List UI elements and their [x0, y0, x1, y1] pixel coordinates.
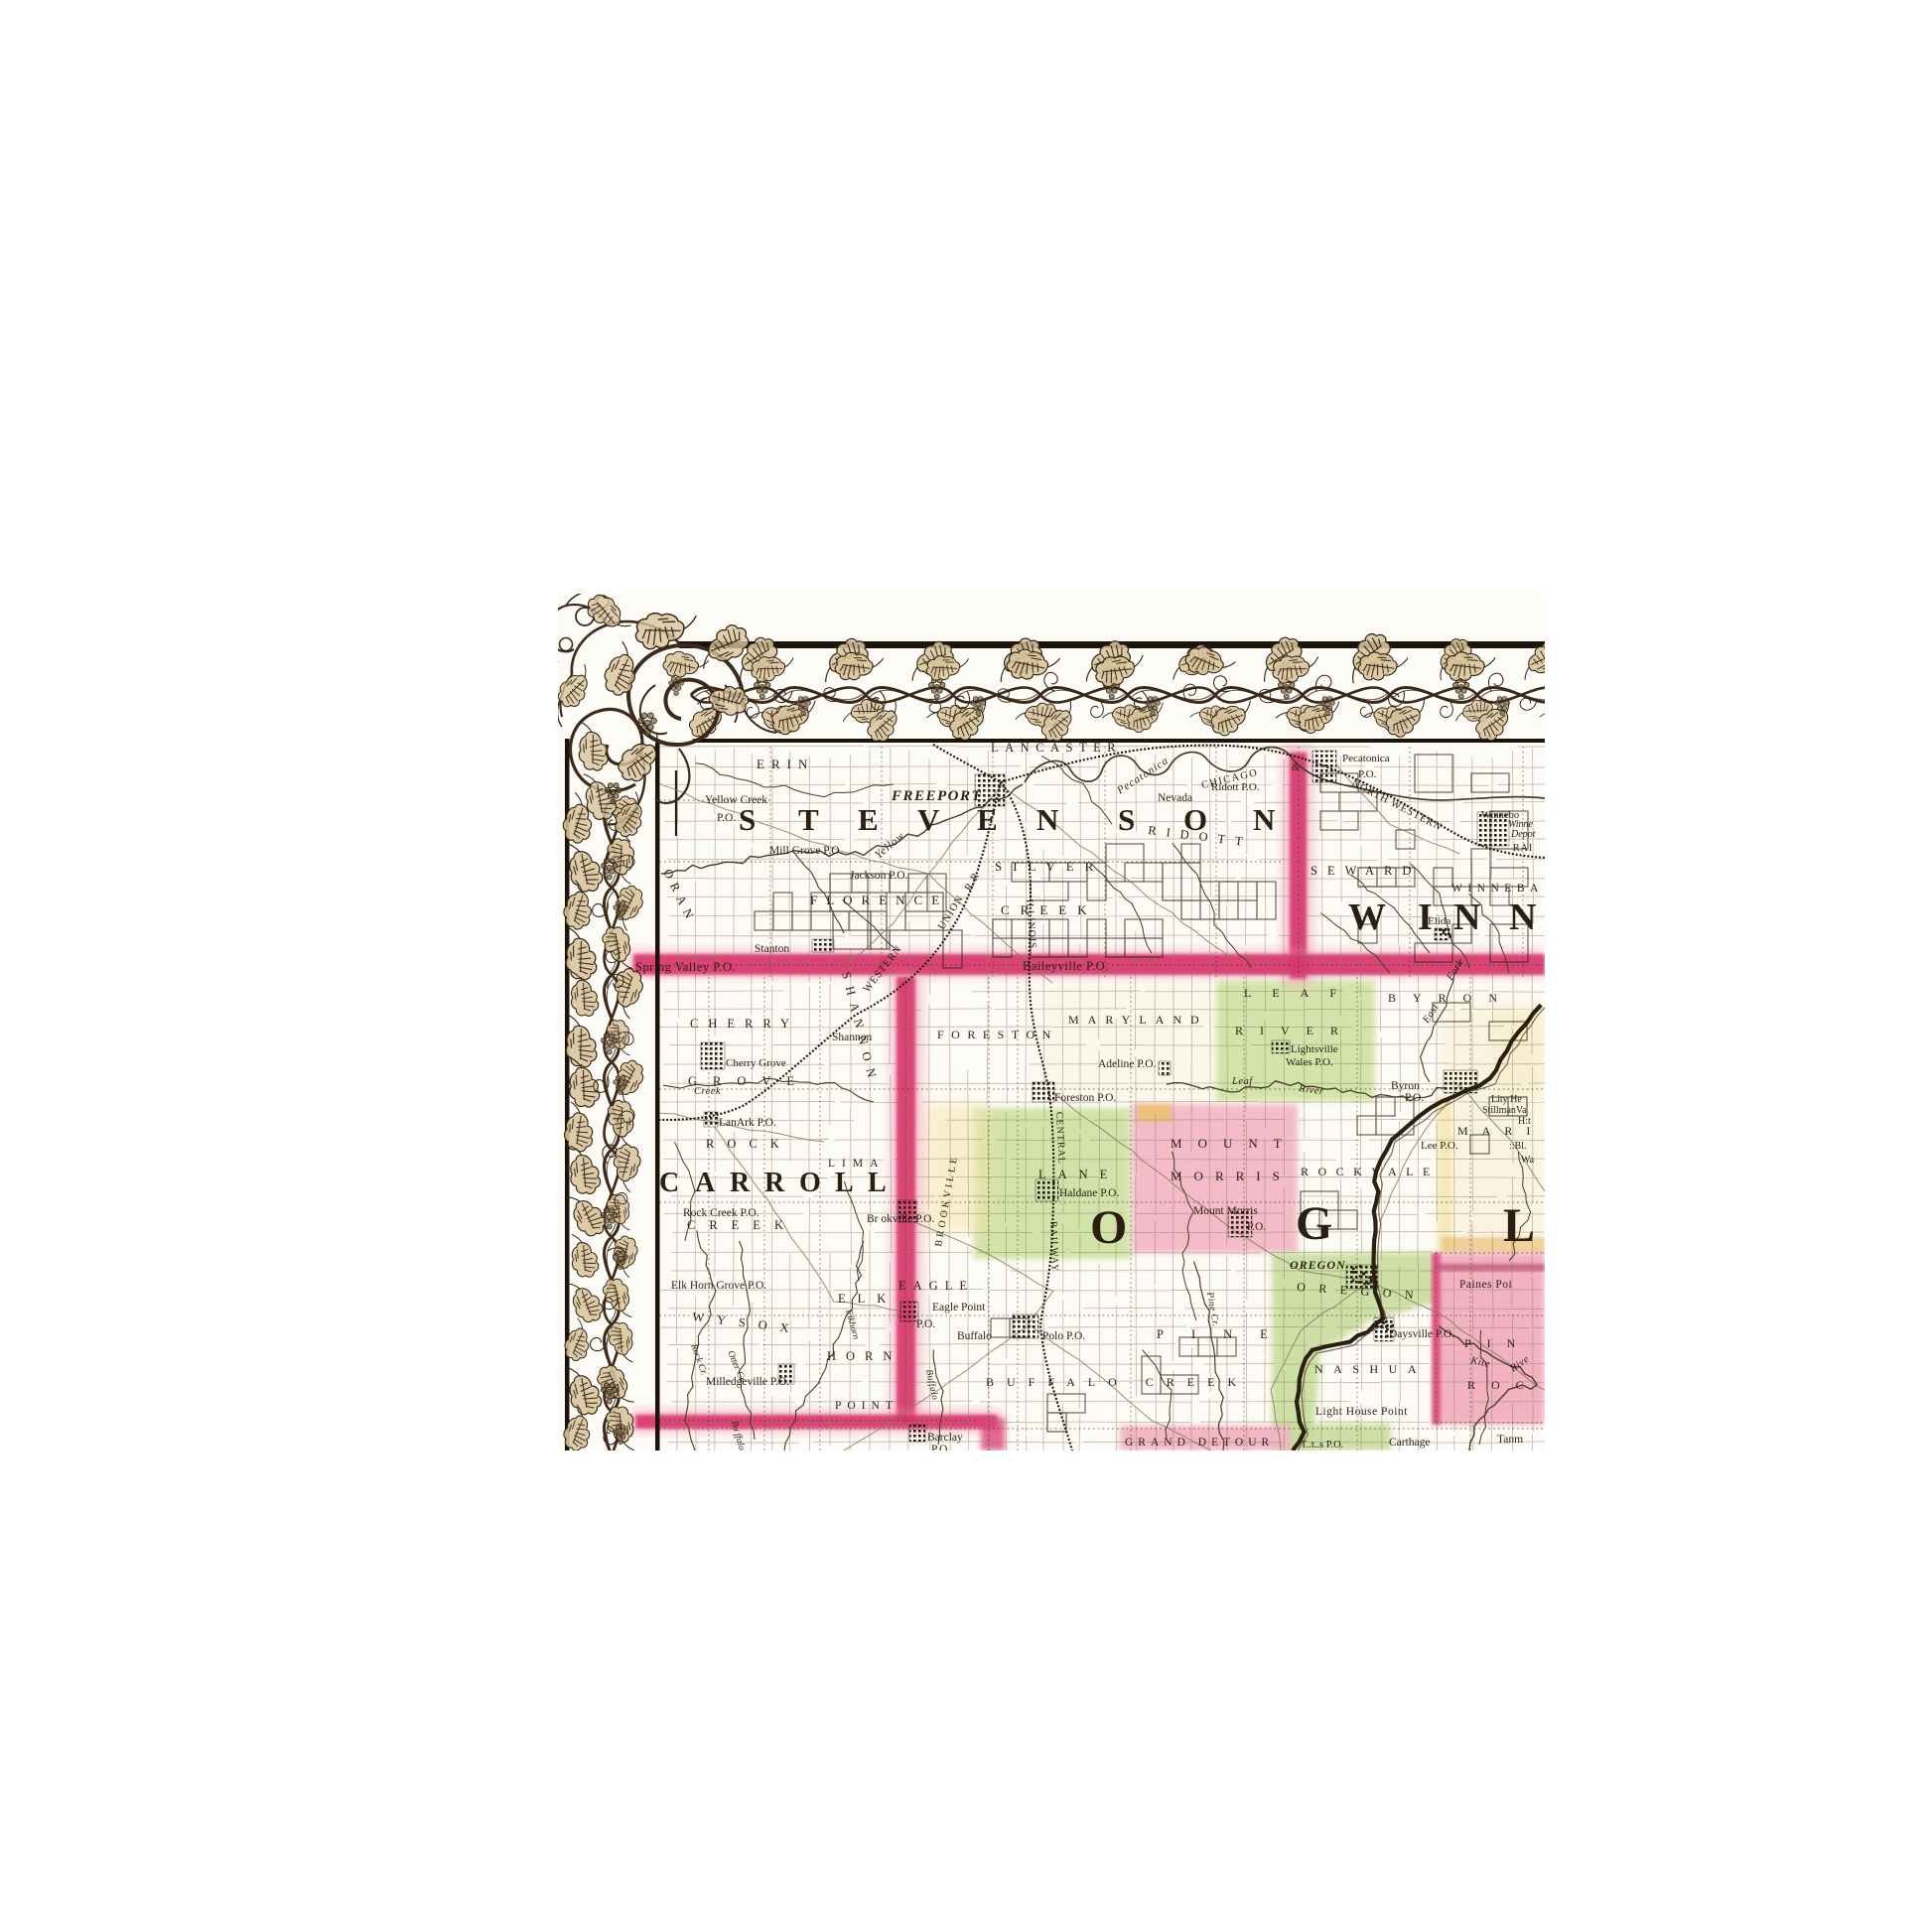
svg-text:Lee P.O.: Lee P.O.	[1421, 1140, 1458, 1152]
svg-text:HORN: HORN	[827, 1349, 901, 1363]
svg-text:GRAND DETOUR: GRAND DETOUR	[1125, 1437, 1274, 1449]
svg-text:ERIN: ERIN	[757, 757, 814, 771]
svg-text:Byron: Byron	[1391, 1080, 1420, 1092]
svg-text:G: G	[1296, 1197, 1332, 1250]
svg-text:MARYLAND: MARYLAND	[1068, 1013, 1208, 1027]
svg-text:RIVER: RIVER	[1235, 1024, 1355, 1037]
svg-text:BYRON: BYRON	[1388, 991, 1514, 1005]
svg-text:Carthage: Carthage	[1389, 1437, 1431, 1449]
svg-text:LANCASTER: LANCASTER	[991, 741, 1122, 755]
svg-text:Foreston P.O.: Foreston P.O.	[1054, 1092, 1116, 1104]
svg-text:CREEK: CREEK	[687, 1218, 797, 1232]
svg-text:Baileyville P.O.: Baileyville P.O.	[1023, 959, 1109, 973]
svg-text:E: E	[977, 802, 998, 837]
svg-text:FLORENCE: FLORENCE	[810, 893, 948, 907]
svg-text:P.O.: P.O.	[717, 812, 736, 824]
svg-text:N: N	[1036, 802, 1058, 837]
svg-text:Lightsville: Lightsville	[1291, 1043, 1338, 1055]
svg-text:FREEPORT: FREEPORT	[891, 788, 982, 804]
svg-text:R: R	[764, 1168, 785, 1198]
svg-text:&: &	[1292, 762, 1300, 773]
svg-text:L: L	[1503, 1199, 1535, 1252]
svg-text:Leaf: Leaf	[1231, 1076, 1254, 1087]
svg-text:PINE: PINE	[1157, 1327, 1296, 1341]
svg-text:Cherry Grove: Cherry Grove	[726, 1057, 786, 1069]
svg-text:RAI: RAI	[1513, 843, 1533, 854]
svg-text:Mount Morris: Mount Morris	[1193, 1205, 1258, 1217]
svg-text:Barclay: Barclay	[927, 1432, 963, 1444]
svg-text:L: L	[868, 1168, 887, 1198]
svg-text:V: V	[917, 802, 940, 837]
svg-text:P.O.: P.O.	[1247, 1221, 1266, 1233]
svg-text:POINT: POINT	[835, 1400, 898, 1412]
svg-text:MARI: MARI	[1457, 1124, 1544, 1138]
svg-text:Yellow Creek: Yellow Creek	[705, 794, 767, 806]
svg-text:N: N	[1453, 897, 1480, 938]
svg-text:ROCK: ROCK	[706, 1137, 792, 1151]
svg-text:Buffalo: Buffalo	[957, 1330, 992, 1342]
svg-text:SEWARD: SEWARD	[1311, 864, 1421, 878]
svg-text:Rock Creek P.O.: Rock Creek P.O.	[683, 1207, 759, 1219]
svg-text:Elk Horn Grove P.O.: Elk Horn Grove P.O.	[671, 1280, 766, 1292]
svg-text:O: O	[1090, 1201, 1127, 1254]
svg-text:P.O.: P.O.	[1405, 1092, 1424, 1104]
svg-text:NASHUA: NASHUA	[1314, 1362, 1427, 1376]
svg-text:OREGON: OREGON	[1290, 1258, 1346, 1272]
svg-text:Elida: Elida	[1428, 915, 1450, 927]
svg-text:Haldane P.O.: Haldane P.O.	[1059, 1187, 1119, 1199]
svg-text:Milledgeville P.O.: Milledgeville P.O.	[706, 1376, 789, 1388]
svg-text:Paines Poi: Paines Poi	[1459, 1279, 1512, 1291]
svg-text:RAILWAY: RAILWAY	[1047, 1221, 1060, 1273]
svg-text:Polo P.O.: Polo P.O.	[1042, 1330, 1085, 1342]
svg-text:S: S	[1118, 802, 1135, 837]
svg-text:CREEK: CREEK	[1001, 902, 1098, 917]
svg-text:LanArk P.O.: LanArk P.O.	[719, 1117, 776, 1129]
svg-text:Jackson P.O.: Jackson P.O.	[850, 870, 908, 882]
svg-text:Pecatonica: Pecatonica	[1342, 753, 1390, 764]
svg-text:CHERRY: CHERRY	[690, 1017, 799, 1031]
svg-text:Shannon: Shannon	[832, 1032, 873, 1043]
svg-text:T..t..s P.O.: T..t..s P.O.	[1301, 1440, 1343, 1450]
svg-text:Stanton: Stanton	[755, 943, 789, 955]
svg-text:Wales P.O.: Wales P.O.	[1286, 1056, 1333, 1068]
svg-text:Br okville P.O.: Br okville P.O.	[867, 1213, 934, 1225]
svg-text:PIN: PIN	[1464, 1336, 1531, 1350]
svg-text:Wa: Wa	[1521, 1155, 1535, 1166]
svg-text:ROC: ROC	[1467, 1378, 1540, 1392]
svg-text:N: N	[1509, 897, 1536, 938]
svg-text:L: L	[835, 1168, 854, 1198]
svg-text:EAGLE: EAGLE	[898, 1279, 974, 1293]
svg-text:Nevada: Nevada	[1158, 792, 1192, 804]
svg-text:Eagle Point: Eagle Point	[932, 1302, 986, 1313]
svg-text:LIMA: LIMA	[828, 1158, 885, 1170]
svg-text:SILVER: SILVER	[995, 859, 1104, 874]
svg-text:MORRIS: MORRIS	[1171, 1169, 1292, 1183]
svg-text:Daysville P.O.: Daysville P.O.	[1389, 1328, 1454, 1340]
svg-text:Mill Grove P.O.: Mill Grove P.O.	[769, 845, 843, 857]
svg-text:Tanm: Tanm	[1497, 1434, 1523, 1446]
svg-text:E: E	[858, 802, 879, 837]
svg-text:C: C	[659, 1168, 679, 1198]
svg-text:ELK: ELK	[838, 1292, 897, 1306]
svg-text:Lity He: Lity He	[1491, 1094, 1522, 1105]
svg-text:P.O.: P.O.	[916, 1318, 935, 1330]
svg-text:LEAF: LEAF	[1244, 986, 1357, 1000]
svg-text:Light House Point: Light House Point	[1315, 1406, 1408, 1418]
svg-text:Depot: Depot	[1510, 829, 1536, 840]
svg-text:LANE: LANE	[1038, 1168, 1119, 1181]
svg-text:Adeline P.O.: Adeline P.O.	[1098, 1058, 1157, 1070]
svg-text:Spring Valley P.O.: Spring Valley P.O.	[635, 960, 736, 974]
svg-text:Creek: Creek	[694, 1086, 721, 1097]
svg-text:P.O.: P.O.	[1358, 768, 1377, 780]
svg-text:StillmanVa: StillmanVa	[1482, 1105, 1527, 1116]
svg-text:S: S	[739, 802, 756, 837]
svg-text:WINNEBA: WINNEBA	[1451, 883, 1544, 895]
svg-text:W: W	[1348, 897, 1386, 938]
svg-text:H:t: H:t	[1518, 1116, 1531, 1127]
svg-text:BUFFALO CREEK: BUFFALO CREEK	[986, 1375, 1249, 1389]
svg-text:N: N	[1253, 802, 1275, 837]
svg-text:A: A	[695, 1168, 716, 1198]
svg-text:MOUNT: MOUNT	[1171, 1136, 1298, 1151]
svg-text:T: T	[798, 802, 819, 837]
svg-text:ROCKVALE: ROCKVALE	[1301, 1165, 1440, 1178]
svg-text:R: R	[730, 1168, 751, 1198]
svg-text:FORESTON: FORESTON	[937, 1028, 1058, 1041]
svg-text:O: O	[799, 1168, 821, 1198]
svg-text:::Bl.: ::Bl.	[1509, 1141, 1527, 1152]
